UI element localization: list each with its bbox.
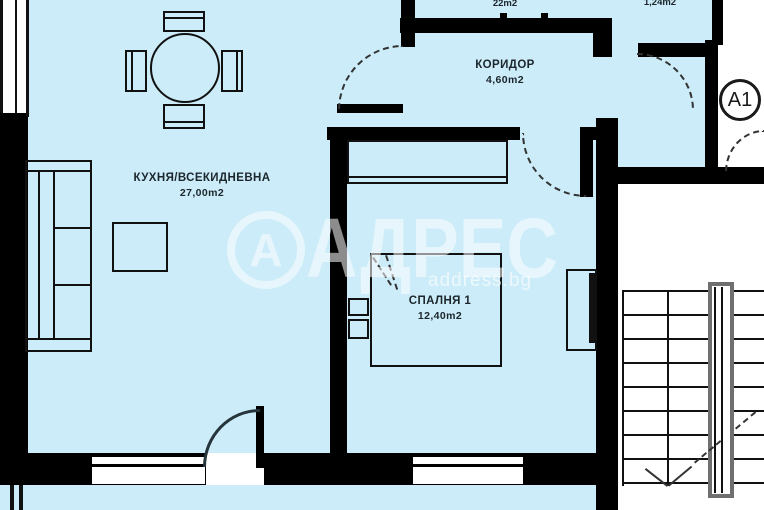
sofa-cushion-line	[53, 284, 92, 286]
wall-corridor-jog	[593, 18, 612, 57]
apartment-badge-label: A1	[728, 89, 752, 112]
chair-back-line	[165, 121, 203, 123]
kitchen-name: КУХНЯ/ВСЕКИДНЕВНА	[92, 171, 312, 186]
watermark-logo-icon: А	[227, 211, 305, 289]
dining-table	[150, 33, 220, 103]
kitchen-label: КУХНЯ/ВСЕКИДНЕВНА 27,00m2	[92, 171, 312, 200]
wall-kitchen-bedroom	[330, 127, 347, 455]
door-jamb-mark	[541, 13, 548, 19]
wall-right-upper	[712, 0, 723, 45]
kitchen-window	[92, 457, 205, 464]
railing-inner-line	[714, 287, 716, 493]
balcony-railing-line	[19, 485, 23, 510]
corridor-label: КОРИДОР 4,60m2	[430, 58, 580, 87]
stairs-steps	[622, 290, 764, 486]
corridor-area: 4,60m2	[430, 73, 580, 87]
bedroom-label: СПАЛНЯ 1 12,40m2	[365, 294, 515, 323]
kitchen-door-swing-icon	[338, 45, 403, 110]
bedroom-window	[413, 457, 523, 464]
sofa-back-line	[53, 170, 55, 340]
chair	[125, 50, 147, 92]
top-right-room-area: 1,24m2	[622, 0, 698, 8]
stairs-divider-line	[667, 290, 669, 486]
door-jamb-mark	[500, 13, 507, 19]
dresser-inner-bar	[589, 273, 597, 343]
apartment-badge: A1	[719, 79, 761, 121]
top-left-room-area: 22m2	[468, 0, 542, 9]
wall-corridor-north	[400, 18, 612, 33]
sofa-armrest-line	[25, 170, 92, 172]
sofa-back-line	[38, 170, 40, 340]
wardrobe-inner-line	[347, 176, 508, 178]
bedroom-door-swing-icon	[522, 133, 586, 197]
left-window-frame	[26, 0, 29, 117]
sofa	[25, 160, 92, 352]
entry-door-swing-icon	[637, 53, 694, 110]
corridor-name: КОРИДОР	[430, 58, 580, 73]
kitchen-area: 27,00m2	[92, 186, 312, 200]
bedroom-name: СПАЛНЯ 1	[365, 294, 515, 309]
floor-plan: КУХНЯ/ВСЕКИДНЕВНА 27,00m2 КОРИДОР 4,60m2…	[0, 0, 764, 510]
coffee-table	[112, 222, 168, 272]
wall-right-entry	[705, 40, 718, 170]
wall-bedroom-top	[327, 127, 520, 140]
sofa-armrest-line	[25, 338, 92, 340]
chair	[163, 104, 205, 129]
balcony-railing-line	[10, 485, 14, 510]
wall-left-exterior	[0, 113, 28, 470]
left-window-frame	[15, 0, 17, 113]
watermark-logo-letter: А	[249, 223, 282, 277]
sofa-cushion-line	[53, 227, 92, 229]
kitchen-window	[92, 467, 205, 484]
bedroom-window	[413, 467, 523, 484]
chair-back-line	[165, 17, 203, 19]
chair-back-line	[236, 52, 238, 90]
balcony-door-swing-icon	[203, 409, 260, 467]
railing-inner-line	[721, 287, 723, 493]
chair	[163, 11, 205, 32]
chair	[221, 50, 243, 92]
bedroom-area: 12,40m2	[365, 309, 515, 323]
left-window-frame	[0, 0, 3, 113]
chair-back-line	[131, 52, 133, 90]
stairs-left-edge	[622, 290, 624, 486]
